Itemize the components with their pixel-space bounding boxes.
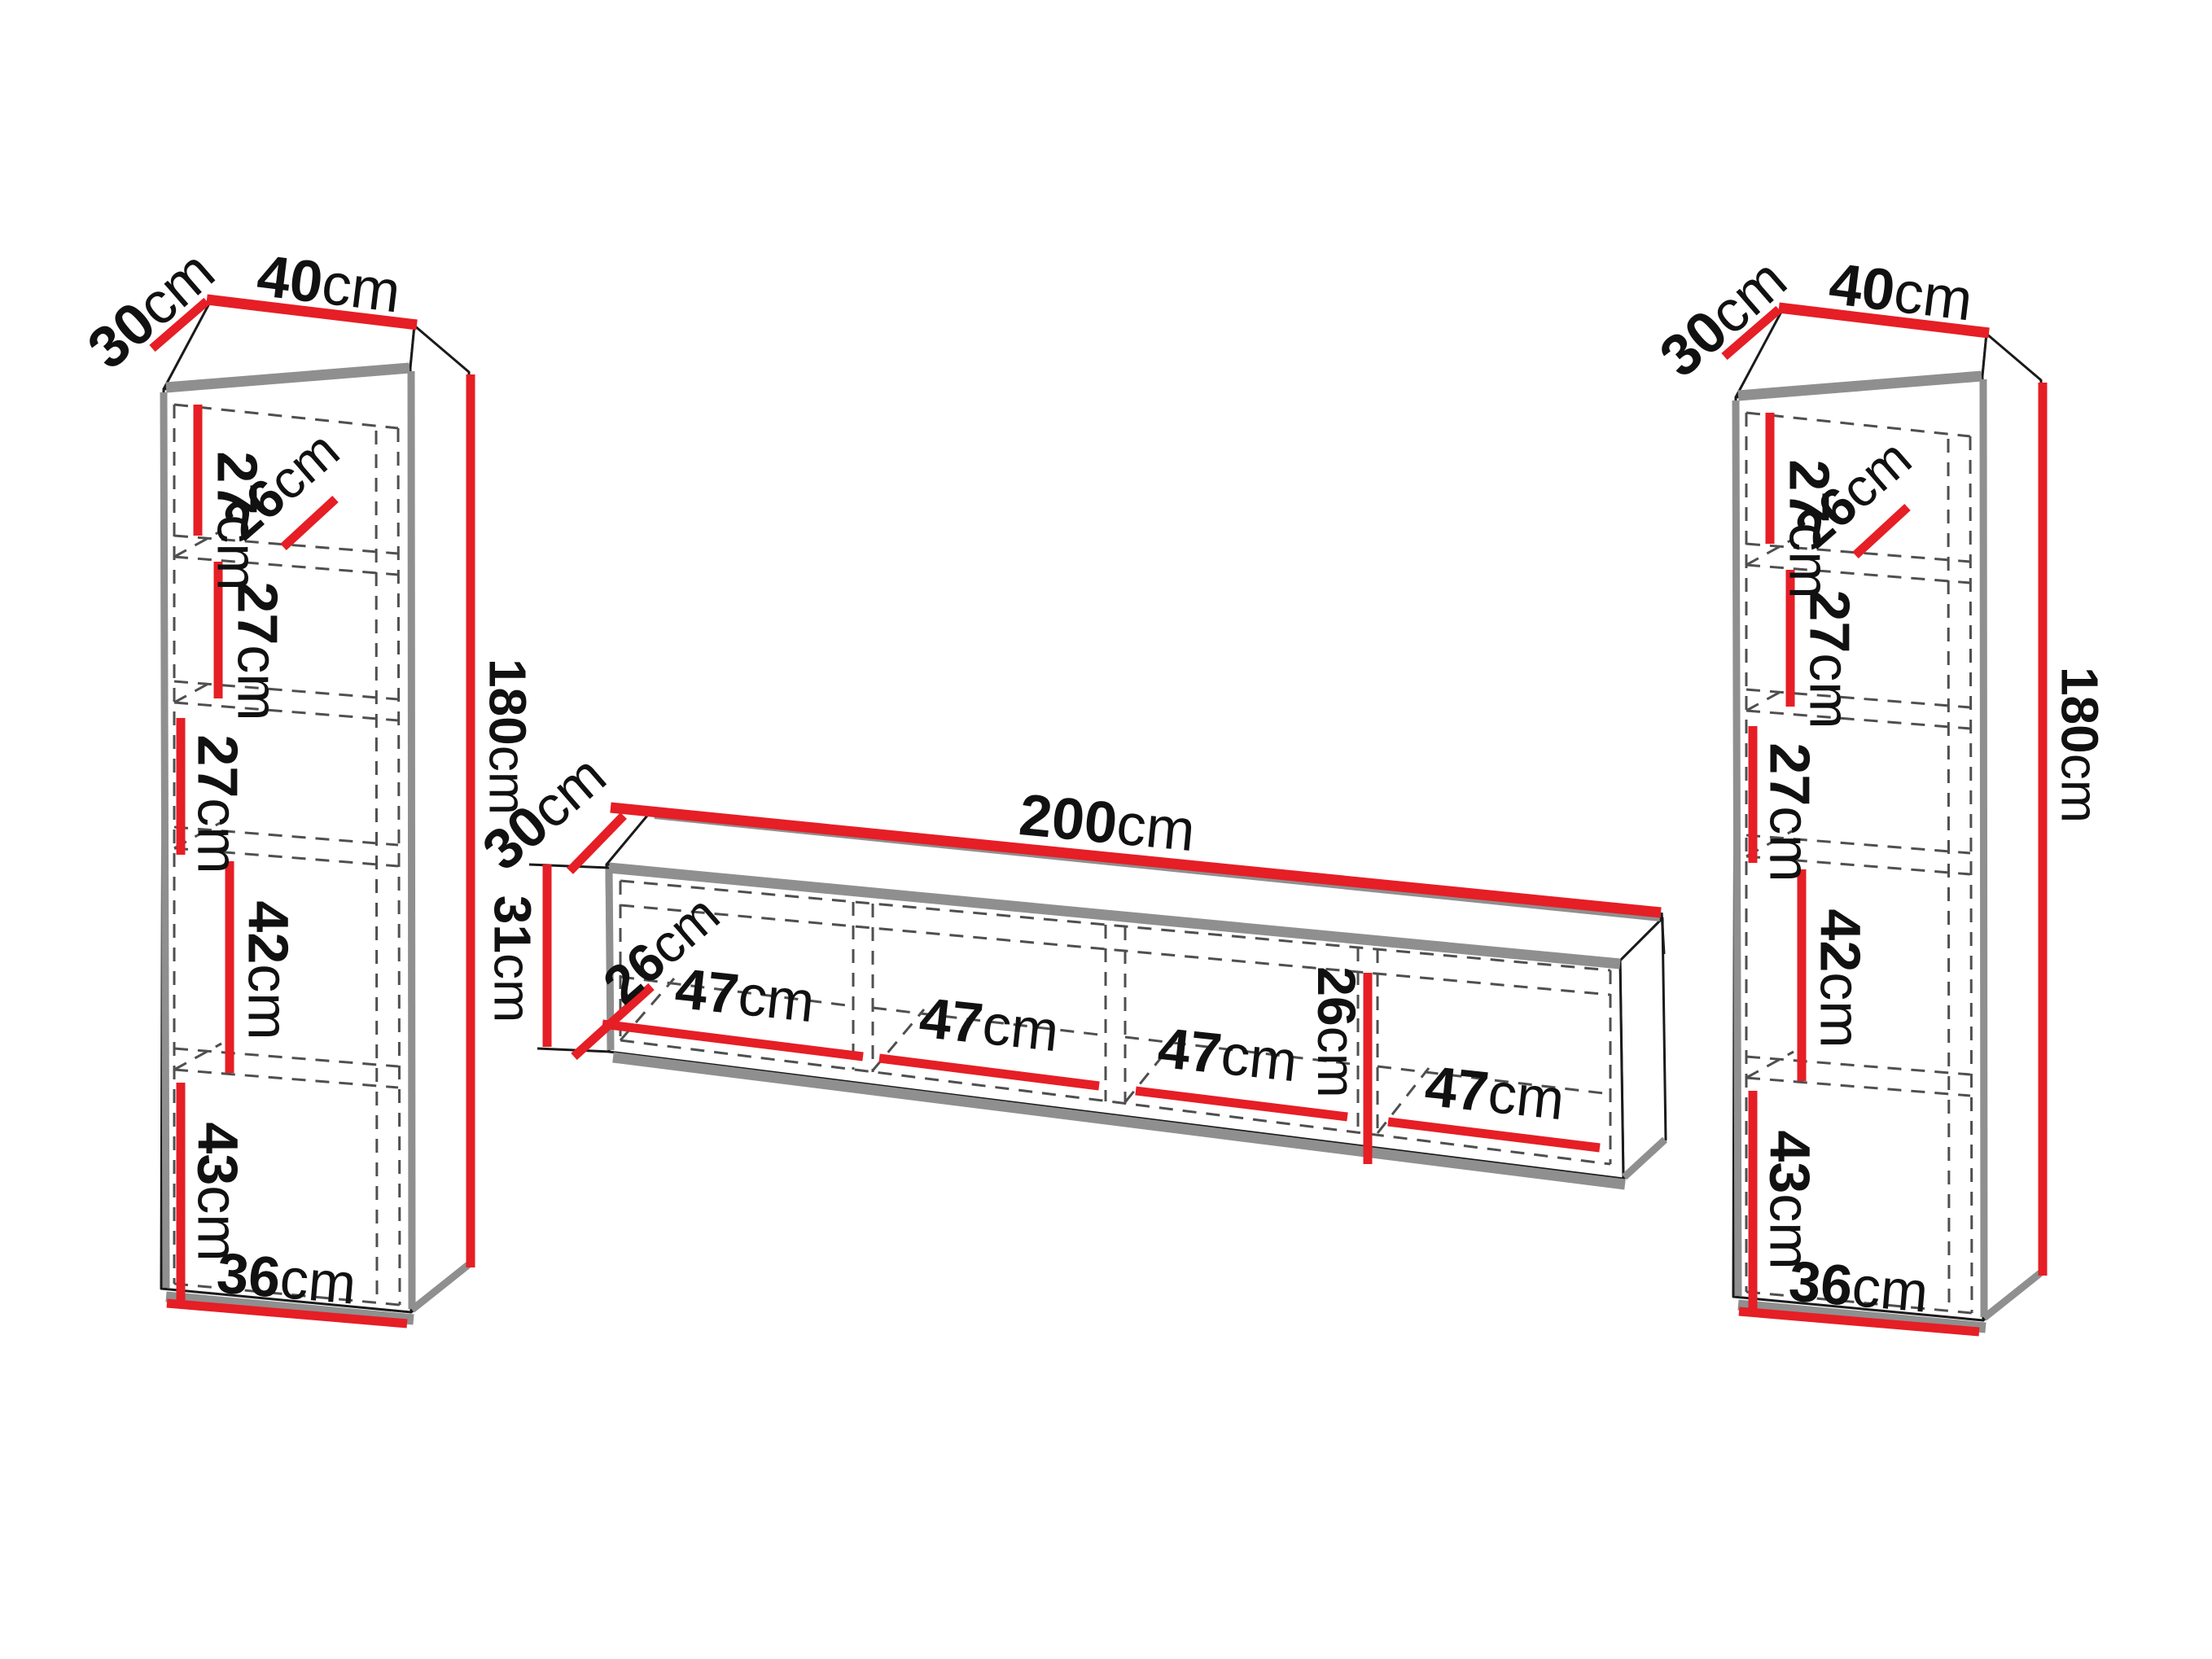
- diagram-canvas: 30cm 40cm 180cm 27cm 26cm 27cm 27cm 42cm…: [0, 0, 2212, 1659]
- right-cabinet-shelf3-label: 27cm: [1759, 742, 1822, 882]
- right-cabinet-shelf4-label: 42cm: [1809, 908, 1873, 1048]
- right-cabinet: 30cm 40cm 180cm 27cm 26cm 27cm 27cm 42cm…: [1648, 247, 2109, 1332]
- left-cabinet-shelf4-label: 42cm: [237, 900, 300, 1040]
- tv-stand-inner-height-label: 26cm: [1307, 966, 1367, 1097]
- left-cabinet-shelf2-label: 27cm: [226, 581, 290, 720]
- left-cabinet-inner-width-label: 36cm: [214, 1241, 358, 1316]
- tv-stand-side-face: [1620, 918, 1666, 1179]
- left-cabinet-shelf3-label: 27cm: [186, 734, 250, 873]
- left-cabinet-side-face: [410, 326, 469, 1312]
- left-cabinet: 30cm 40cm 180cm 27cm 26cm 27cm 27cm 42cm…: [76, 239, 537, 1324]
- tv-stand-height-label: 31cm: [484, 895, 542, 1023]
- tv-stand: 30cm 200cm 31cm 26cm 26cm 47cm 47cm 47cm…: [471, 743, 1666, 1184]
- left-cabinet-shelf5-label: 43cm: [186, 1122, 250, 1261]
- right-cabinet-shelf5-label: 43cm: [1759, 1130, 1822, 1269]
- right-cabinet-height-label: 180cm: [2051, 667, 2109, 823]
- right-cabinet-side-face: [1982, 334, 2041, 1320]
- right-cabinet-inner-width-label: 36cm: [1786, 1249, 1930, 1324]
- right-cabinet-shelf2-label: 27cm: [1798, 589, 1862, 729]
- furniture-dimension-diagram: 30cm 40cm 180cm 27cm 26cm 27cm 27cm 42cm…: [0, 0, 2212, 1659]
